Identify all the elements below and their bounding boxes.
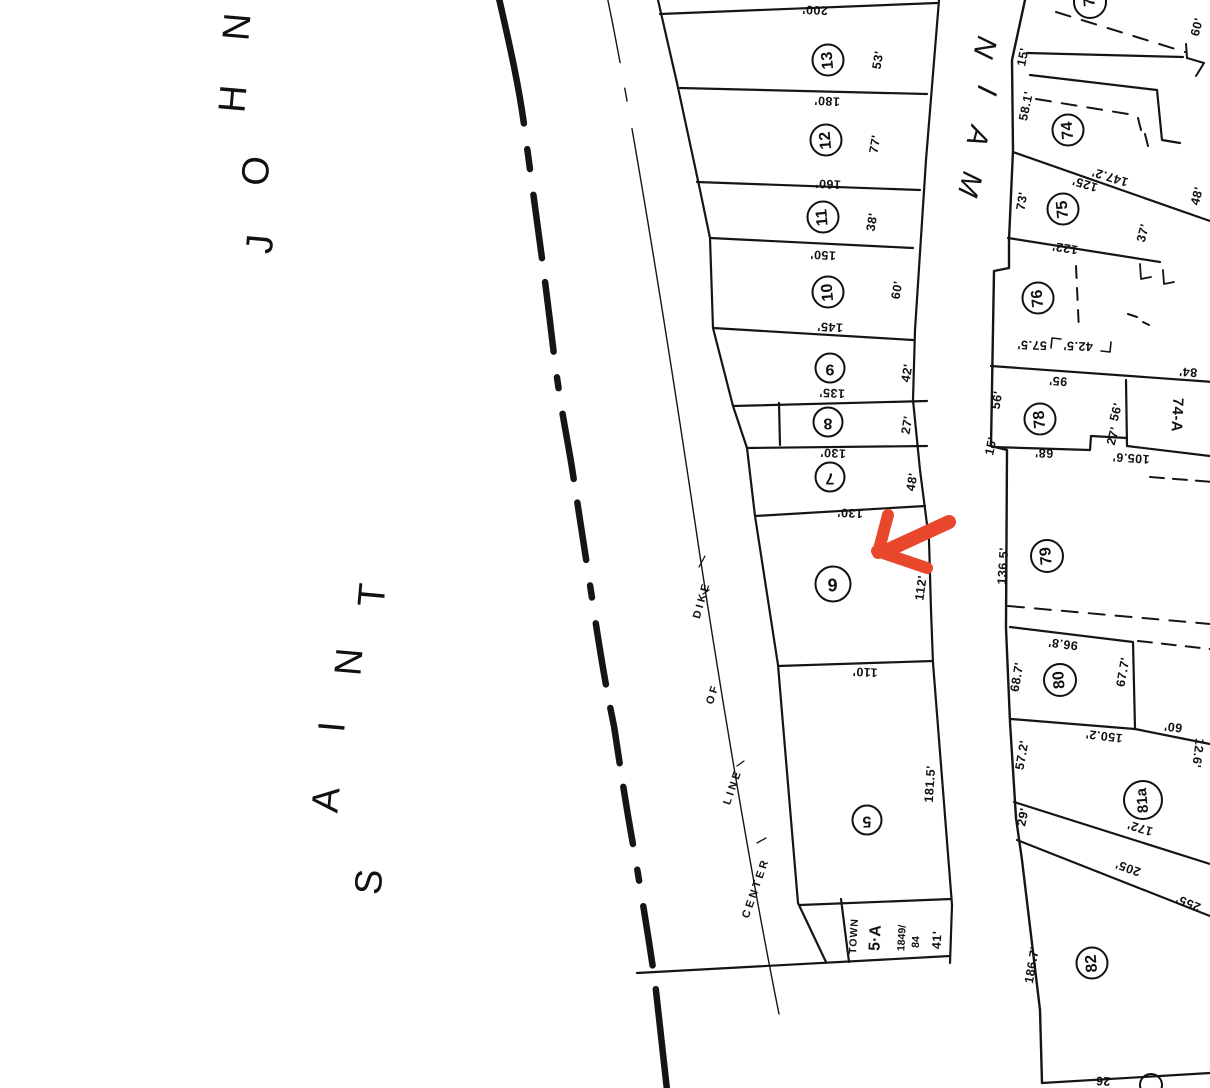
dim-label-200: 200' <box>802 2 829 17</box>
town-parcel-town-label: TOWN <box>847 918 861 954</box>
lot-circle-79: 79 <box>1030 539 1064 573</box>
lot-circle-10: 10 <box>812 276 845 309</box>
river-letter-john-h: H <box>211 83 256 114</box>
town-parcel-number: 5·A <box>866 925 885 952</box>
frontage-label-41: 41' <box>930 930 945 949</box>
lot-circle-5: 5 <box>852 805 883 836</box>
lot-circle-8: 8 <box>813 407 844 438</box>
dike-dashed-line <box>498 0 667 1088</box>
river-letter-john-n: N <box>215 11 260 42</box>
dim-label-145: 145' <box>817 319 844 334</box>
lot-circle-6: 6 <box>815 566 852 603</box>
lot-circle-11: 11 <box>807 201 840 234</box>
arrow-barb-right <box>877 551 927 568</box>
lot-circle-78: 78 <box>1024 403 1057 436</box>
lot-circle-13: 13 <box>812 44 845 77</box>
dim-label-160: 160' <box>815 176 842 191</box>
main-street-east-line <box>991 0 1042 1083</box>
lot-circle-81a: 81a <box>1123 780 1163 820</box>
red-arrow-annotation <box>877 515 949 568</box>
dim-label-425: 42.5' <box>1063 338 1093 353</box>
lot-circle-76: 76 <box>1022 282 1055 315</box>
dim-label-60-80: 60' <box>1163 719 1183 735</box>
river-letter-john-o: O <box>234 154 279 187</box>
lot-circle-74: 74 <box>1052 114 1085 147</box>
river-letter-saint-s: S <box>347 867 392 896</box>
dim-label-150: 150' <box>810 247 837 262</box>
dim-label-180: 180' <box>814 93 841 108</box>
dim-label-68: 68' <box>1035 446 1054 461</box>
dim-label-1056: 105.6' <box>1112 450 1150 467</box>
town-parcel-deed-bottom: 84 <box>910 936 923 948</box>
dim-label-130a: 130' <box>820 445 847 460</box>
river-letter-saint-a: A <box>304 785 349 814</box>
town-parcel-deed-top: 1849/ <box>895 925 908 952</box>
river-letter-saint-t: T <box>351 582 396 609</box>
lot-circle-82: 82 <box>1076 947 1109 980</box>
river-letter-saint-n: N <box>327 646 372 677</box>
river-letter-john-j: J <box>239 233 283 256</box>
dim-label-575: 57.5' <box>1017 337 1047 352</box>
dim-label-135: 135' <box>819 385 846 400</box>
arrow-shaft <box>886 522 949 551</box>
dim-label-95: 95' <box>1048 373 1067 388</box>
dim-label-110: 110' <box>852 664 878 679</box>
dim-label-1365: 136.5' <box>995 547 1012 585</box>
lot-circle-12: 12 <box>810 124 843 157</box>
plat-map: S A I N T J O H N M A I N CENTER LINE OF… <box>0 0 1210 1088</box>
lot-circle-75: 75 <box>1047 193 1080 226</box>
lot-circle-80: 80 <box>1043 663 1077 697</box>
lot-circle-7: 7 <box>815 462 846 493</box>
parcel-label-74a: 74-A <box>1168 397 1187 432</box>
map-linework <box>0 0 1210 1088</box>
dim-label-26-bottom: 26 <box>1095 1074 1111 1088</box>
dim-label-130b: 130' <box>837 505 864 520</box>
frontage-label-1815: 181.5' <box>922 765 939 803</box>
lot-circle-9: 9 <box>815 353 846 384</box>
dim-label-84: 84' <box>1178 364 1197 379</box>
